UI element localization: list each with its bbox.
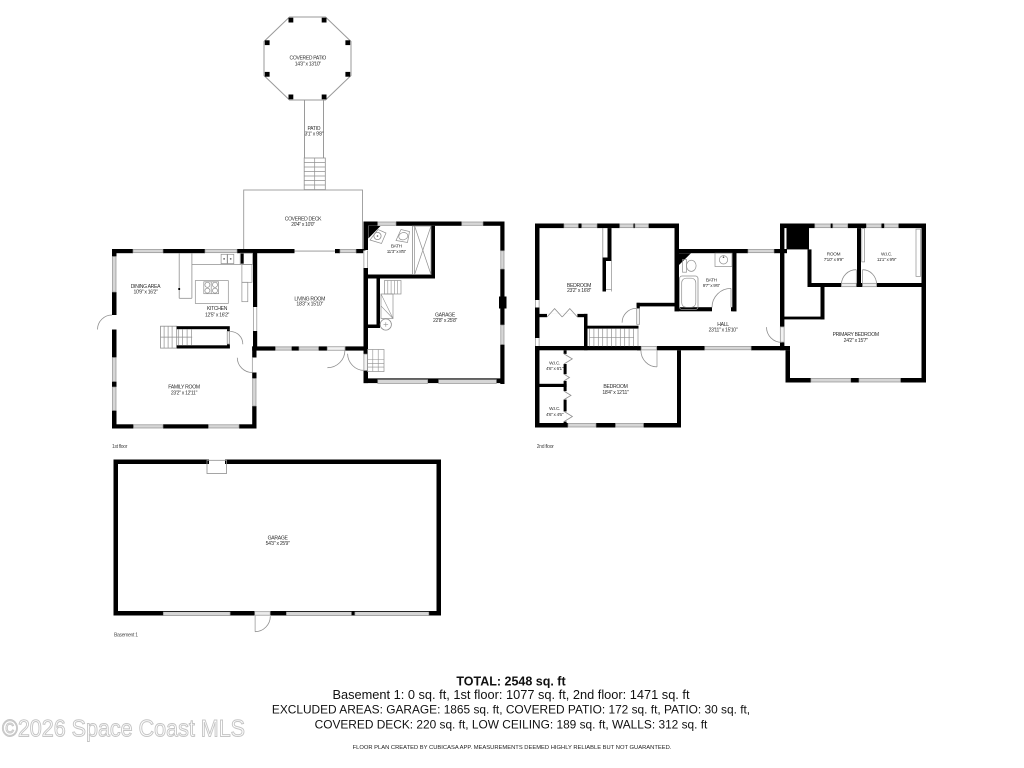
svg-text:Basement 1: 0 sq. ft, 1st floo: Basement 1: 0 sq. ft, 1st floor: 1077 sq… xyxy=(332,687,690,702)
svg-text:9'7" x 9'6": 9'7" x 9'6" xyxy=(703,283,721,288)
svg-text:©2026 Space Coast MLS: ©2026 Space Coast MLS xyxy=(2,716,245,743)
svg-text:10'9" x 16'2": 10'9" x 16'2" xyxy=(133,289,158,295)
svg-text:BATH: BATH xyxy=(391,244,402,249)
svg-text:23'2" x 12'11": 23'2" x 12'11" xyxy=(171,391,198,397)
svg-text:7'10" x 9'9": 7'10" x 9'9" xyxy=(824,257,844,262)
svg-text:Basement 1: Basement 1 xyxy=(114,633,138,639)
svg-text:24'2" x 15'7": 24'2" x 15'7" xyxy=(844,338,869,344)
svg-text:22'8" x 25'8": 22'8" x 25'8" xyxy=(433,318,458,324)
svg-text:2nd floor: 2nd floor xyxy=(537,444,554,450)
svg-text:14'3" x 13'10": 14'3" x 13'10" xyxy=(295,61,322,67)
svg-text:W.I.C.: W.I.C. xyxy=(881,251,892,256)
svg-text:11'1" x 9'9": 11'1" x 9'9" xyxy=(877,257,897,262)
svg-text:20'4" x 10'0": 20'4" x 10'0" xyxy=(291,222,315,228)
svg-text:23'2" x 16'8": 23'2" x 16'8" xyxy=(567,288,592,294)
svg-text:18'3" x 15'10": 18'3" x 15'10" xyxy=(296,302,323,308)
svg-text:18'4" x 12'11": 18'4" x 12'11" xyxy=(602,390,629,396)
svg-text:54'3" x 25'9": 54'3" x 25'9" xyxy=(266,541,291,547)
svg-text:ROOM: ROOM xyxy=(827,251,841,256)
svg-text:KITCHEN: KITCHEN xyxy=(207,306,228,312)
svg-text:4'6" x 4'6": 4'6" x 4'6" xyxy=(546,412,564,417)
svg-text:23'11" x 15'10": 23'11" x 15'10" xyxy=(709,328,738,334)
svg-text:W.I.C.: W.I.C. xyxy=(549,406,560,411)
svg-text:BATH: BATH xyxy=(706,277,717,282)
svg-text:12'5" x 16'2": 12'5" x 16'2" xyxy=(205,313,230,319)
svg-text:EXCLUDED AREAS: GARAGE: 1865 s: EXCLUDED AREAS: GARAGE: 1865 sq. ft, COV… xyxy=(272,702,750,716)
svg-text:3'1" x 9'8": 3'1" x 9'8" xyxy=(305,131,324,137)
svg-text:W.I.C.: W.I.C. xyxy=(549,361,560,366)
svg-text:11'3" x 8'5": 11'3" x 8'5" xyxy=(387,249,407,254)
svg-text:FLOOR PLAN CREATED BY CUBICASA: FLOOR PLAN CREATED BY CUBICASA APP. MEAS… xyxy=(353,745,672,751)
svg-text:COVERED DECK: 220 sq. ft, LOW: COVERED DECK: 220 sq. ft, LOW CEILING: 1… xyxy=(315,717,708,731)
svg-text:4'6" x 6'1": 4'6" x 6'1" xyxy=(546,366,564,371)
svg-text:1st floor: 1st floor xyxy=(112,444,128,450)
